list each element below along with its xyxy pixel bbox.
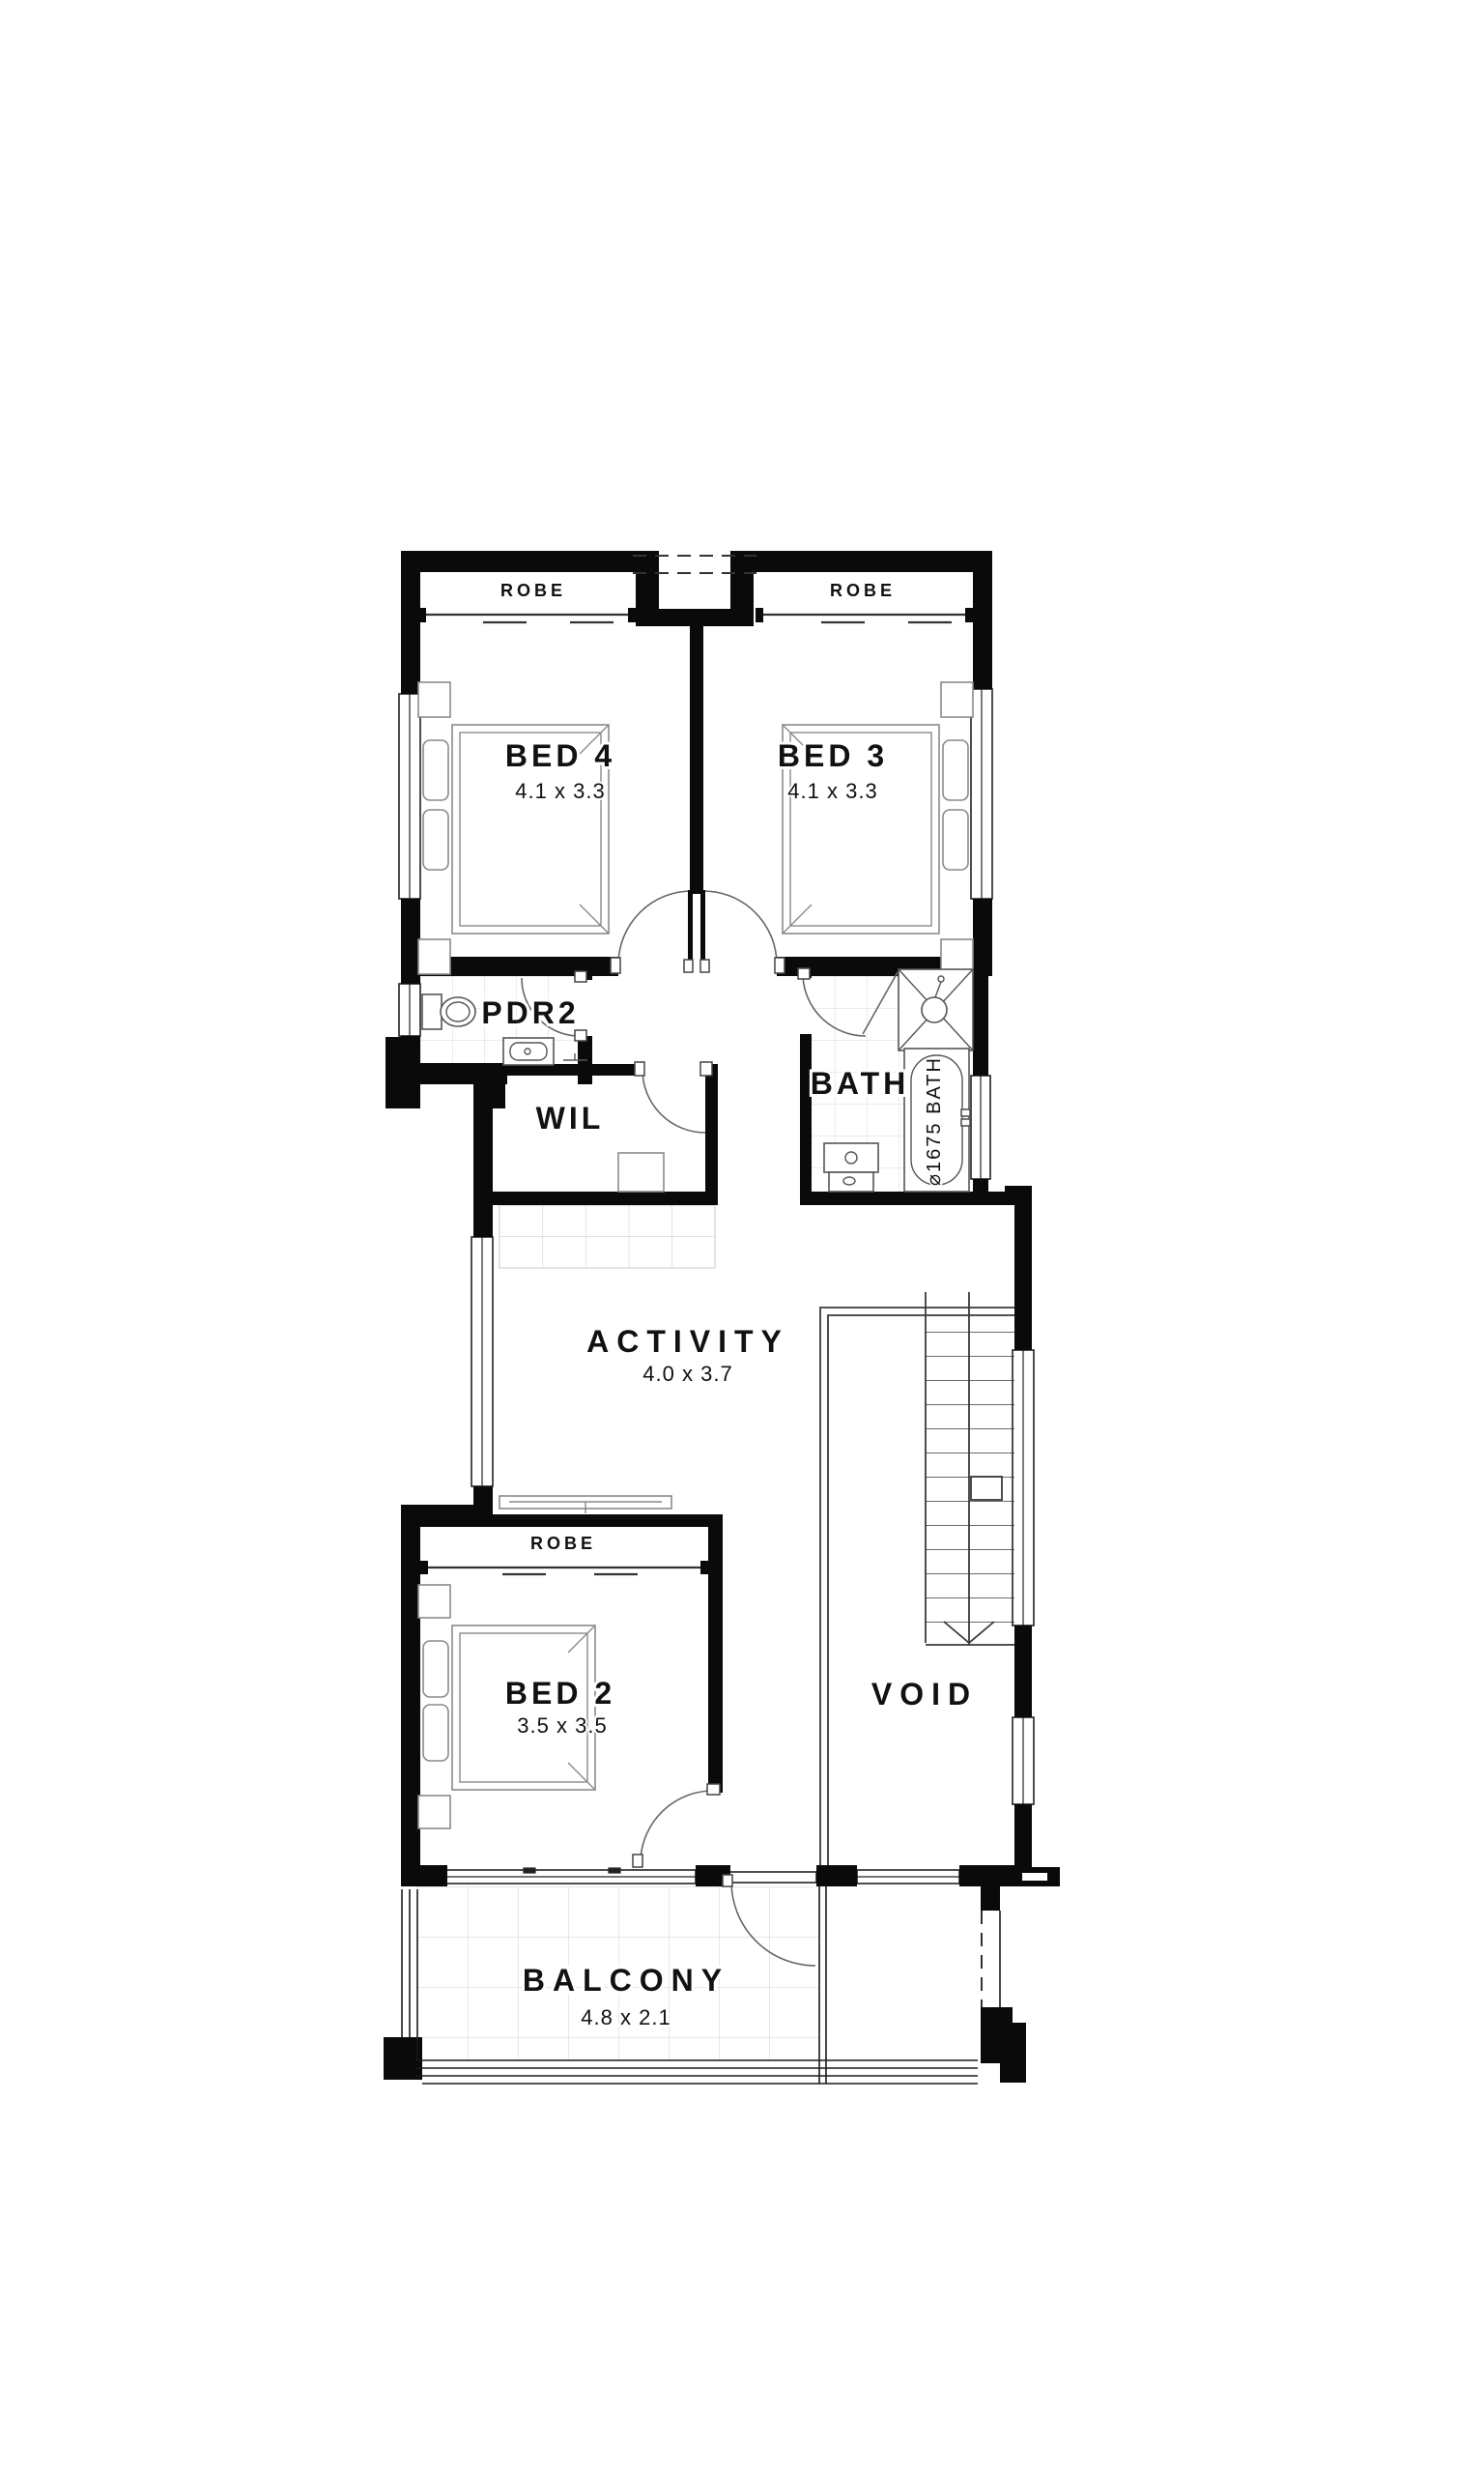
bed3-robe-slider <box>756 608 973 622</box>
activity-window <box>471 1237 493 1486</box>
bed3-door <box>700 890 785 973</box>
wall-left-upper-a <box>401 551 420 694</box>
wall-bed2-left <box>401 1505 420 1886</box>
robe-bed4-label: ROBE <box>500 581 566 600</box>
bathtub-size-label: ⌀1675 BATH <box>924 1056 945 1186</box>
bed2-pillow-2 <box>423 1705 448 1761</box>
bed4-door <box>611 890 693 973</box>
wall-activity-left-a <box>473 1205 493 1237</box>
wall-left-upper-b <box>401 899 420 984</box>
wall-bed2-right <box>708 1514 723 1793</box>
stair-window <box>1013 1350 1034 1625</box>
wall-wil-top <box>505 1064 642 1076</box>
wall-post-bottom-left <box>401 1865 447 1886</box>
bed4-robe-slider <box>418 608 636 622</box>
wall-balcony-post-bl <box>384 2037 422 2080</box>
bed4-side-table-bottom <box>418 939 450 974</box>
wall-top-right <box>754 551 992 572</box>
void-sliding-window <box>857 1870 959 1884</box>
bed2-label: BED 2 <box>505 1676 615 1711</box>
wall-bath-right-a <box>973 964 988 1076</box>
wall-bed-divider <box>690 626 703 894</box>
robe-bed3-label: ROBE <box>830 581 896 600</box>
bed4-side-table-top <box>418 682 450 717</box>
robe-bed2-label: ROBE <box>530 1534 596 1553</box>
wall-wil-bottom <box>473 1192 717 1205</box>
bed2-pillow-1 <box>423 1641 448 1697</box>
wall-stub-below <box>981 1886 1000 1911</box>
bed3-dims: 4.1 x 3.3 <box>787 779 877 803</box>
void-window <box>1013 1717 1034 1804</box>
wall-bath-right-b <box>973 1179 988 1192</box>
bed2-side-table-top <box>418 1585 450 1618</box>
wall-top-left <box>401 551 638 572</box>
bed4-pillow-1 <box>423 740 448 800</box>
bed2-robe-slider <box>420 1561 708 1574</box>
wil-label: WIL <box>536 1101 605 1136</box>
bed4-window <box>399 694 420 899</box>
wall-bath-bottom <box>800 1192 1032 1205</box>
bath-window <box>971 1076 990 1179</box>
bed3-window <box>971 689 992 899</box>
bed3-pillow-2 <box>943 810 968 870</box>
linen-shelf-grid <box>499 1205 715 1268</box>
wall-notch <box>1022 1873 1047 1881</box>
bed2-window <box>446 1868 696 1884</box>
wall-right-upper-b <box>973 899 992 964</box>
wil-cabinet <box>618 1153 664 1192</box>
bed4-dims: 4.1 x 3.3 <box>515 779 605 803</box>
activity-dims: 4.0 x 3.7 <box>642 1362 732 1386</box>
bed3-bed <box>783 682 973 974</box>
wall-post-balcony-right <box>816 1865 857 1886</box>
floor-plan: ROBE ROBE ROBE BED 4 4.1 x 3.3 BED 3 4.1… <box>0 0 1484 2474</box>
pdr2-window <box>399 984 420 1036</box>
bed4-bed <box>418 682 609 974</box>
bed4-pillow-2 <box>423 810 448 870</box>
wall-right-lower-b <box>1014 1625 1032 1717</box>
wall-bath-left-b <box>800 1034 812 1192</box>
structure-hook-notch <box>1013 2007 1026 2023</box>
bed2-side-table-bottom <box>418 1796 450 1828</box>
wall-niche-bottom <box>636 609 754 626</box>
pdr2-label: PDR2 <box>481 995 579 1030</box>
staircase <box>820 1292 1014 1865</box>
toilet-fixture <box>422 994 475 1029</box>
bed3-pillow-1 <box>943 740 968 800</box>
shower-fixture <box>899 969 973 1050</box>
wil-door <box>635 1062 712 1133</box>
wall-bed2-robe-top <box>401 1514 718 1527</box>
wall-right-upper-a <box>973 551 992 689</box>
bath-label: BATH <box>811 1066 910 1101</box>
bed3-side-table-top <box>941 682 973 717</box>
balcony-label: BALCONY <box>523 1963 729 1998</box>
bed4-label: BED 4 <box>505 738 615 773</box>
bed3-label: BED 3 <box>778 738 888 773</box>
balcony-dims: 4.8 x 2.1 <box>581 2005 671 2029</box>
void-label: VOID <box>871 1677 978 1712</box>
vanity-fixture <box>824 1143 878 1192</box>
wall-wil-left <box>473 1085 493 1205</box>
activity-desk <box>499 1496 671 1513</box>
bed2-door <box>633 1784 720 1867</box>
structure-hook-b <box>1000 2057 1026 2083</box>
wall-wil-right <box>705 1064 718 1205</box>
balcony-door-leaf <box>729 1872 816 1883</box>
wall-right-lower-a <box>1014 1192 1032 1350</box>
activity-label: ACTIVITY <box>586 1324 789 1359</box>
bed2-dims: 3.5 x 3.5 <box>517 1713 607 1738</box>
